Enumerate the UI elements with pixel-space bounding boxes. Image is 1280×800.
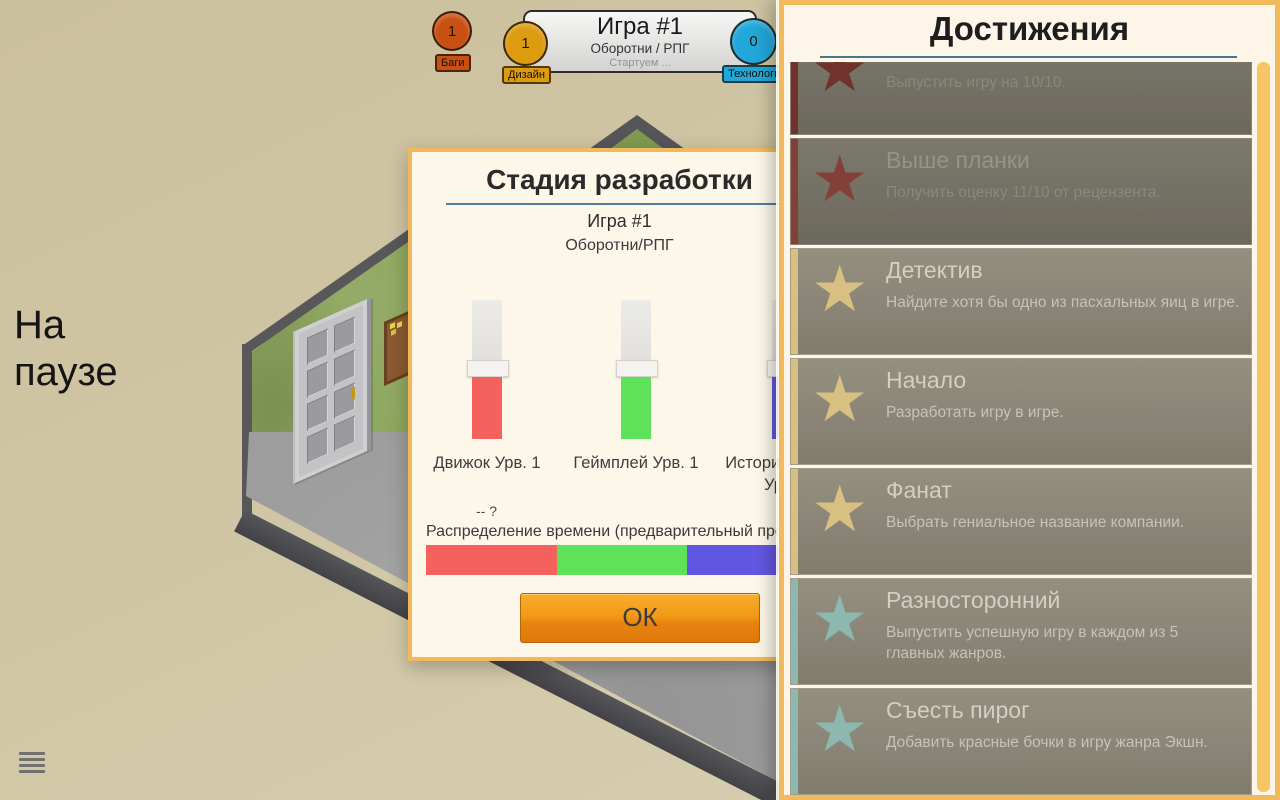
hint-text: -- ? xyxy=(476,503,497,519)
time-allocation-label: Распределение времени (предварительный п… xyxy=(426,523,833,541)
allocation-engine-segment xyxy=(426,545,557,575)
achievement-description: Выпустить успешную игру в каждом из 5 гл… xyxy=(886,623,1241,665)
game-info-panel[interactable]: Игра #1 Оборотни / РПГ Стартуем ... xyxy=(523,10,757,73)
achievement-title: Выше планки xyxy=(886,147,1030,174)
pause-status-text: На паузе xyxy=(14,302,154,396)
achievement-description: Добавить красные бочки в игру жанра Экшн… xyxy=(886,733,1241,754)
achievement-card: ★ Съесть пирог Добавить красные бочки в … xyxy=(790,688,1252,795)
dialog-game-name: Игра #1 xyxy=(412,211,827,232)
slider-track[interactable] xyxy=(472,300,502,364)
time-allocation-bar xyxy=(426,545,818,575)
achievement-title: Начало xyxy=(886,367,966,394)
technology-count-badge: 0 xyxy=(730,18,777,65)
bugs-badge-label: Баги xyxy=(435,54,471,72)
star-icon: ★ xyxy=(811,587,868,651)
slider-label: Движок Урв. 1 xyxy=(412,452,562,474)
gameplay-slider: Геймплей Урв. 1 xyxy=(561,300,711,485)
dialog-title: Стадия разработки xyxy=(412,164,827,196)
achievements-scrollbar[interactable] xyxy=(1257,62,1270,792)
game-status: Стартуем ... xyxy=(525,57,755,69)
slider-label: Геймплей Урв. 1 xyxy=(561,452,711,474)
achievement-card: ★ Выпустить игру на 10/10. xyxy=(790,62,1252,135)
slider-value-bar xyxy=(621,377,651,439)
achievement-card: ★ Выше планки Получить оценку 11/10 от р… xyxy=(790,138,1252,245)
achievements-panel: Достижения ★ Выпустить игру на 10/10. ★ … xyxy=(779,0,1280,800)
bugs-count-badge: 1 xyxy=(432,11,472,51)
ok-button[interactable]: ОК xyxy=(520,593,760,643)
star-icon: ★ xyxy=(811,477,868,541)
slider-track[interactable] xyxy=(621,300,651,364)
door-panels xyxy=(307,316,355,463)
design-count-badge: 1 xyxy=(503,21,548,66)
slider-handle[interactable] xyxy=(616,360,658,377)
achievement-title: Разносторонний xyxy=(886,587,1060,614)
star-icon: ★ xyxy=(811,697,868,761)
achievement-card: ★ Детектив Найдите хотя бы одно из пасха… xyxy=(790,248,1252,355)
slider-value-bar xyxy=(472,377,502,439)
achievement-description: Выпустить игру на 10/10. xyxy=(886,73,1241,94)
achievement-title: Фанат xyxy=(886,477,952,504)
achievement-description: Получить оценку 11/10 от рецензента. xyxy=(886,183,1241,204)
card-color-strip xyxy=(791,62,798,134)
achievement-card: ★ Разносторонний Выпустить успешную игру… xyxy=(790,578,1252,685)
star-icon: ★ xyxy=(811,62,868,101)
card-color-strip xyxy=(791,249,798,354)
game-subtitle: Оборотни / РПГ xyxy=(525,41,755,56)
game-title: Игра #1 xyxy=(525,13,755,41)
achievement-card: ★ Начало Разработать игру в игре. xyxy=(790,358,1252,465)
achievements-list[interactable]: ★ Выпустить игру на 10/10. ★ Выше планки… xyxy=(790,62,1252,795)
card-color-strip xyxy=(791,689,798,794)
allocation-gameplay-segment xyxy=(557,545,688,575)
achievements-title-rule xyxy=(820,56,1237,58)
star-icon: ★ xyxy=(811,367,868,431)
door-face xyxy=(299,305,363,477)
card-color-strip xyxy=(791,359,798,464)
achievements-title: Достижения xyxy=(784,10,1275,48)
star-icon: ★ xyxy=(811,147,868,211)
card-color-strip xyxy=(791,579,798,684)
game-screen: На паузе Игра #1 Оборотни / РПГ Стартуем… xyxy=(0,0,1280,800)
achievement-description: Выбрать гениальное название компании. xyxy=(886,513,1241,534)
slider-handle[interactable] xyxy=(467,360,509,377)
achievement-description: Найдите хотя бы одно из пасхальных яиц в… xyxy=(886,293,1241,314)
achievement-card: ★ Фанат Выбрать гениальное название комп… xyxy=(790,468,1252,575)
door-handle xyxy=(351,386,355,401)
card-color-strip xyxy=(791,469,798,574)
card-color-strip xyxy=(791,139,798,244)
hamburger-menu-icon[interactable] xyxy=(19,752,45,776)
design-badge-label: Дизайн xyxy=(502,66,551,84)
dialog-game-type: Оборотни/РПГ xyxy=(412,237,827,255)
achievement-title: Съесть пирог xyxy=(886,697,1029,724)
achievement-title: Детектив xyxy=(886,257,983,284)
engine-slider: Движок Урв. 1 xyxy=(412,300,562,485)
star-icon: ★ xyxy=(811,257,868,321)
achievement-description: Разработать игру в игре. xyxy=(886,403,1241,424)
development-stage-dialog: Стадия разработки Игра #1 Оборотни/РПГ Д… xyxy=(408,148,831,661)
dialog-title-rule xyxy=(446,203,798,205)
